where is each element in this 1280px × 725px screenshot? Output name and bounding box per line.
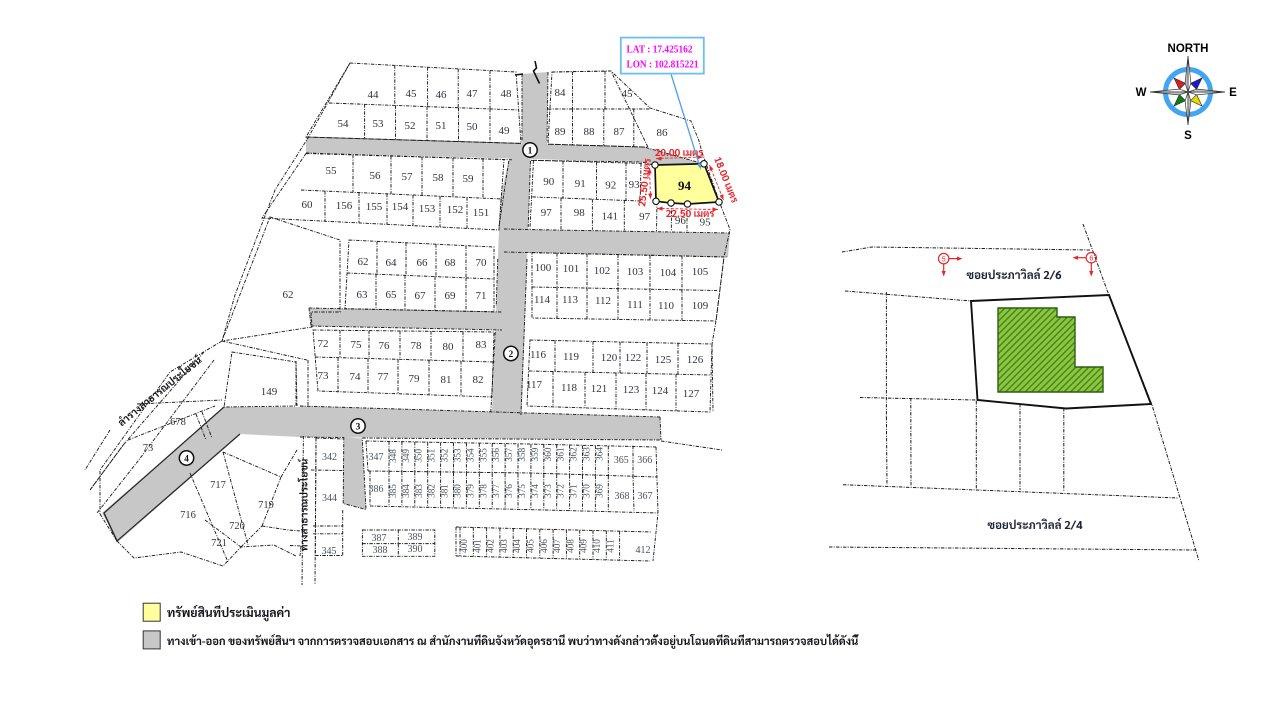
svg-text:77: 77 [378, 371, 390, 383]
svg-text:64: 64 [386, 257, 398, 269]
svg-text:371: 371 [569, 484, 579, 498]
svg-text:412: 412 [636, 545, 651, 556]
svg-text:104: 104 [660, 267, 677, 279]
svg-text:102: 102 [594, 265, 611, 277]
svg-text:2: 2 [509, 350, 514, 360]
svg-text:58: 58 [433, 172, 445, 184]
svg-text:120: 120 [601, 352, 618, 364]
svg-text:124: 124 [652, 385, 669, 397]
svg-text:75: 75 [351, 339, 363, 351]
svg-text:365: 365 [614, 455, 629, 466]
svg-text:404: 404 [512, 539, 522, 553]
svg-text:1: 1 [528, 146, 533, 156]
svg-text:97: 97 [639, 211, 651, 223]
svg-text:83: 83 [476, 339, 488, 351]
svg-text:94: 94 [678, 178, 692, 193]
svg-text:LAT : 17.425162: LAT : 17.425162 [627, 45, 693, 56]
svg-text:E: E [1229, 87, 1237, 99]
svg-text:125: 125 [655, 354, 672, 366]
svg-text:359: 359 [530, 447, 540, 461]
svg-text:105: 105 [692, 266, 709, 278]
svg-text:353: 353 [453, 448, 463, 462]
svg-text:408: 408 [565, 539, 575, 553]
svg-text:121: 121 [591, 383, 608, 395]
svg-text:406: 406 [539, 539, 549, 553]
svg-text:407: 407 [552, 539, 562, 553]
svg-text:114: 114 [534, 294, 551, 306]
svg-text:44: 44 [368, 89, 380, 101]
svg-text:381: 381 [440, 484, 450, 498]
svg-text:117: 117 [526, 379, 543, 391]
svg-text:66: 66 [417, 257, 429, 269]
svg-text:84: 84 [555, 87, 567, 99]
svg-text:82: 82 [473, 374, 484, 386]
svg-text:377: 377 [491, 484, 501, 498]
svg-text:374: 374 [530, 484, 540, 498]
svg-text:101: 101 [563, 263, 580, 275]
svg-text:156: 156 [336, 200, 353, 212]
svg-text:81: 81 [441, 374, 452, 386]
svg-text:70: 70 [476, 257, 488, 269]
svg-text:386: 386 [369, 484, 384, 495]
svg-text:55: 55 [326, 165, 338, 177]
svg-text:362: 362 [569, 447, 579, 461]
svg-text:113: 113 [562, 294, 579, 306]
svg-text:126: 126 [687, 354, 704, 366]
svg-text:69: 69 [445, 290, 457, 302]
svg-text:67: 67 [415, 290, 427, 302]
svg-text:47: 47 [467, 88, 479, 100]
svg-text:719: 719 [258, 500, 274, 511]
svg-text:382: 382 [427, 484, 437, 498]
svg-text:79: 79 [409, 373, 421, 385]
svg-text:388: 388 [373, 545, 388, 556]
svg-text:720: 720 [229, 521, 245, 532]
svg-text:89: 89 [555, 126, 567, 138]
svg-text:358: 358 [517, 447, 527, 461]
svg-text:50: 50 [467, 121, 479, 133]
svg-text:91: 91 [575, 178, 586, 190]
svg-text:389: 389 [408, 532, 423, 543]
svg-text:80: 80 [443, 341, 455, 353]
svg-text:152: 152 [447, 204, 464, 216]
svg-text:151: 151 [473, 207, 490, 219]
svg-text:379: 379 [465, 484, 475, 498]
svg-text:127: 127 [683, 388, 700, 400]
svg-text:363: 363 [582, 447, 592, 461]
svg-text:110: 110 [658, 300, 675, 312]
svg-text:401: 401 [472, 539, 482, 553]
svg-text:92: 92 [605, 180, 616, 192]
svg-text:717: 717 [210, 480, 226, 491]
svg-text:111: 111 [627, 299, 643, 311]
svg-text:73: 73 [143, 443, 154, 454]
svg-text:97: 97 [541, 207, 553, 219]
svg-text:46: 46 [436, 89, 448, 101]
svg-text:364: 364 [594, 447, 604, 461]
svg-text:380: 380 [453, 484, 463, 498]
svg-text:74: 74 [350, 371, 362, 383]
svg-text:370: 370 [582, 484, 592, 498]
svg-text:100: 100 [535, 262, 552, 274]
svg-text:48: 48 [501, 88, 513, 100]
svg-text:5: 5 [942, 257, 946, 264]
svg-text:4: 4 [184, 454, 189, 464]
svg-text:375: 375 [517, 484, 527, 498]
svg-text:62: 62 [283, 289, 294, 301]
svg-text:78: 78 [411, 340, 423, 352]
svg-text:357: 357 [504, 448, 514, 462]
svg-text:112: 112 [595, 295, 611, 307]
svg-text:56: 56 [370, 170, 382, 182]
svg-text:45: 45 [622, 88, 634, 100]
svg-text:384: 384 [401, 484, 411, 498]
svg-text:90: 90 [543, 176, 555, 188]
svg-text:387: 387 [372, 533, 387, 544]
svg-text:6: 6 [1089, 256, 1093, 263]
svg-text:409: 409 [579, 539, 589, 553]
svg-text:65: 65 [386, 289, 398, 301]
svg-text:716: 716 [180, 510, 196, 521]
svg-text:119: 119 [563, 351, 580, 363]
svg-text:149: 149 [261, 386, 278, 398]
svg-text:721: 721 [211, 538, 227, 549]
svg-text:403: 403 [499, 539, 509, 553]
svg-text:76: 76 [379, 340, 391, 352]
svg-text:141: 141 [601, 211, 618, 223]
svg-text:3: 3 [356, 422, 361, 432]
svg-text:88: 88 [584, 126, 596, 138]
svg-text:368: 368 [615, 491, 630, 502]
svg-text:LON : 102.815221: LON : 102.815221 [627, 60, 699, 71]
svg-text:62: 62 [358, 256, 369, 268]
svg-text:347: 347 [369, 452, 384, 463]
svg-text:355: 355 [478, 448, 488, 462]
svg-text:71: 71 [476, 290, 487, 302]
svg-text:410: 410 [592, 539, 602, 553]
svg-text:383: 383 [414, 484, 424, 498]
svg-text:68: 68 [445, 257, 457, 269]
svg-text:154: 154 [392, 201, 409, 213]
svg-text:63: 63 [357, 289, 369, 301]
svg-text:360: 360 [543, 447, 553, 461]
svg-text:349: 349 [401, 449, 411, 463]
svg-text:51: 51 [436, 120, 447, 132]
svg-text:345: 345 [322, 546, 337, 557]
svg-text:155: 155 [366, 201, 383, 213]
svg-text:405: 405 [526, 539, 536, 553]
svg-text:342: 342 [322, 452, 337, 463]
svg-text:411: 411 [605, 539, 615, 553]
svg-text:344: 344 [322, 493, 337, 504]
svg-text:116: 116 [530, 349, 547, 361]
svg-text:373: 373 [543, 484, 553, 498]
svg-text:369: 369 [594, 484, 604, 498]
svg-text:378: 378 [478, 484, 488, 498]
svg-text:372: 372 [556, 484, 566, 498]
svg-text:123: 123 [623, 384, 640, 396]
svg-text:354: 354 [465, 448, 475, 462]
svg-text:103: 103 [627, 266, 644, 278]
svg-text:52: 52 [405, 120, 416, 132]
svg-text:87: 87 [614, 126, 626, 138]
svg-text:385: 385 [388, 484, 398, 498]
svg-text:350: 350 [414, 448, 424, 462]
svg-text:118: 118 [561, 382, 578, 394]
svg-text:72: 72 [318, 338, 329, 350]
svg-text:95: 95 [700, 216, 712, 228]
svg-text:390: 390 [408, 544, 423, 555]
svg-text:98: 98 [574, 207, 586, 219]
svg-text:73: 73 [318, 370, 330, 382]
svg-text:376: 376 [504, 484, 514, 498]
svg-text:53: 53 [373, 118, 385, 130]
svg-text:351: 351 [427, 448, 437, 462]
svg-text:352: 352 [440, 448, 450, 462]
svg-text:402: 402 [486, 539, 496, 553]
svg-text:W: W [1136, 87, 1147, 99]
svg-text:NORTH: NORTH [1168, 43, 1209, 55]
svg-text:86: 86 [657, 127, 669, 139]
svg-text:361: 361 [556, 447, 566, 461]
svg-text:45: 45 [406, 88, 418, 100]
svg-text:356: 356 [491, 448, 501, 462]
svg-text:60: 60 [302, 199, 314, 211]
svg-text:348: 348 [388, 449, 398, 463]
svg-text:59: 59 [463, 173, 475, 185]
svg-text:122: 122 [625, 352, 642, 364]
svg-text:400: 400 [459, 539, 469, 553]
svg-text:S: S [1184, 130, 1192, 142]
svg-text:49: 49 [499, 125, 511, 137]
svg-text:153: 153 [419, 203, 436, 215]
svg-text:109: 109 [692, 300, 709, 312]
svg-text:54: 54 [338, 118, 350, 130]
svg-text:57: 57 [402, 171, 414, 183]
svg-text:93: 93 [629, 179, 641, 191]
svg-text:678: 678 [170, 417, 186, 428]
svg-text:366: 366 [637, 455, 652, 466]
svg-text:367: 367 [638, 491, 653, 502]
